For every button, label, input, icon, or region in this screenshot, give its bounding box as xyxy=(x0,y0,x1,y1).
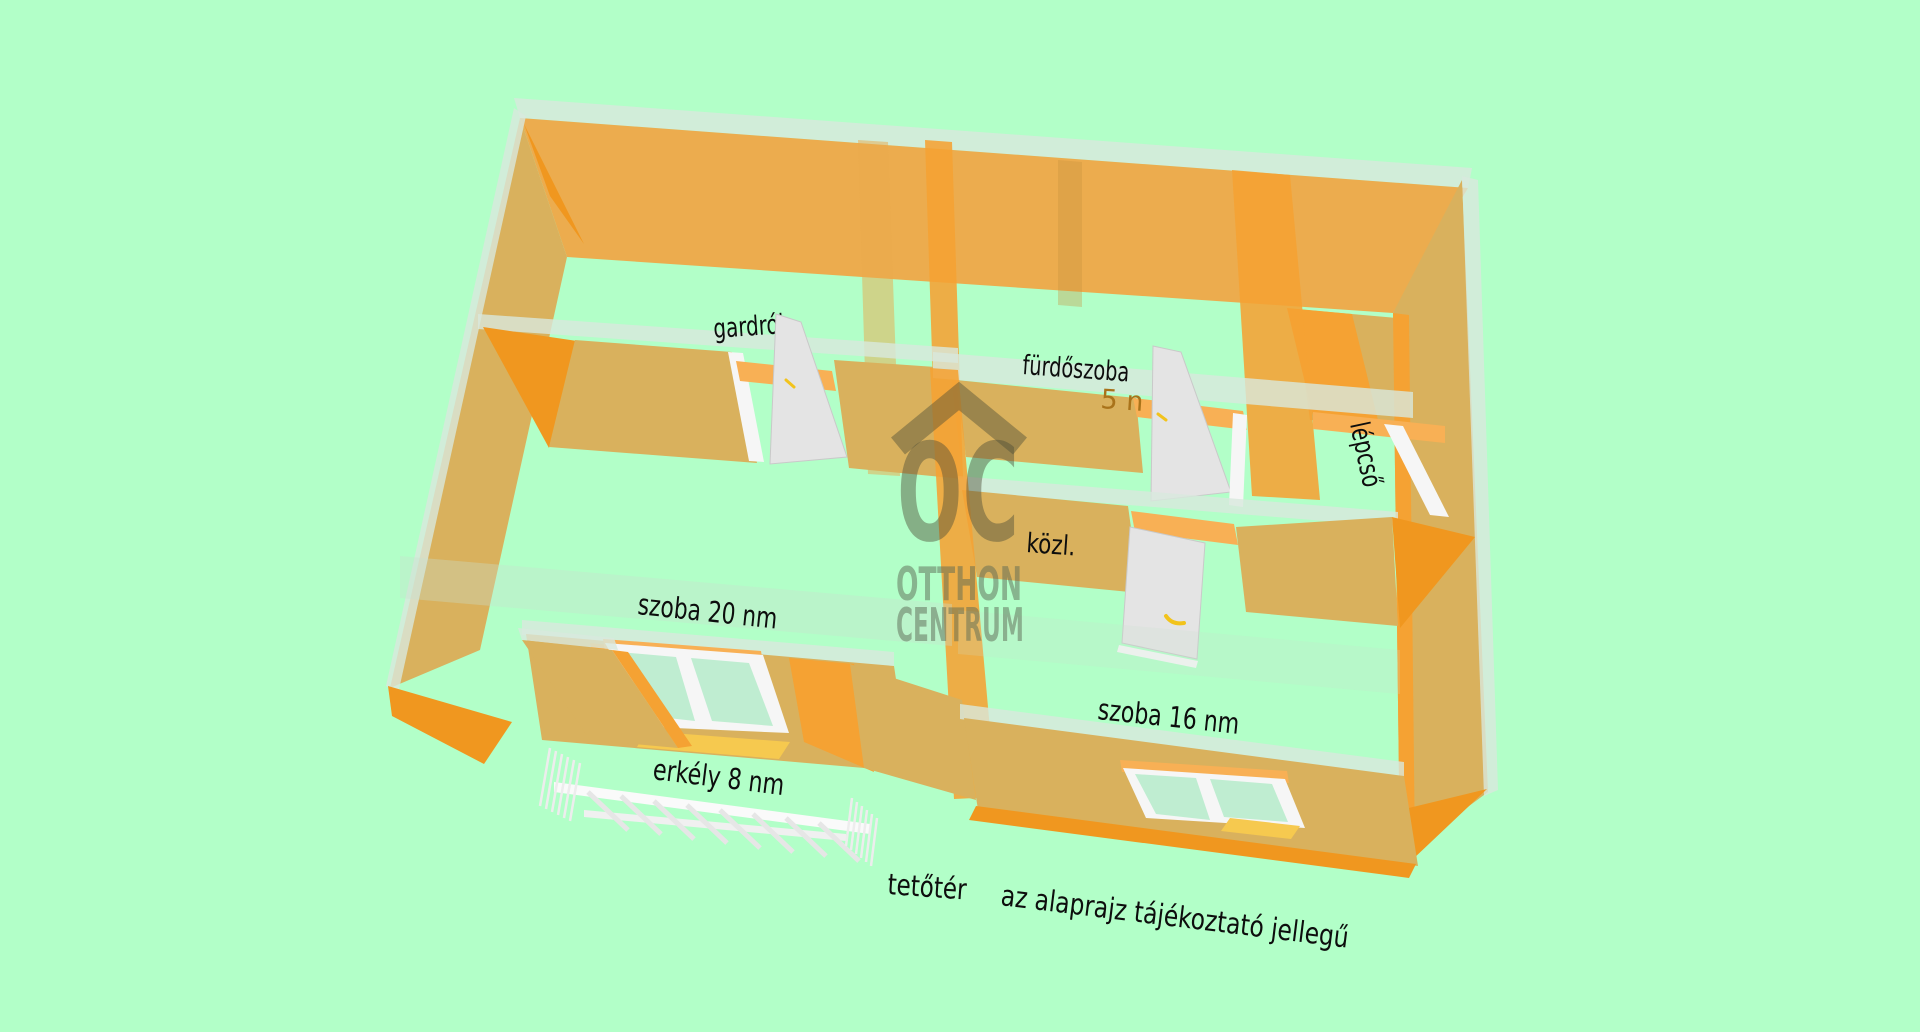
floorplan-image: gardrób 5 n xyxy=(0,0,1920,1032)
room-label-kozl: közl. xyxy=(1026,528,1077,562)
watermark: OC OTTHON CENTRUM xyxy=(896,396,1024,652)
area-label-furdoszoba: 5 n xyxy=(1100,384,1145,418)
watermark-logo: OC xyxy=(897,415,1019,572)
watermark-line2: CENTRUM xyxy=(896,598,1024,652)
floor-label-tetoter: tetőtér xyxy=(887,867,968,906)
